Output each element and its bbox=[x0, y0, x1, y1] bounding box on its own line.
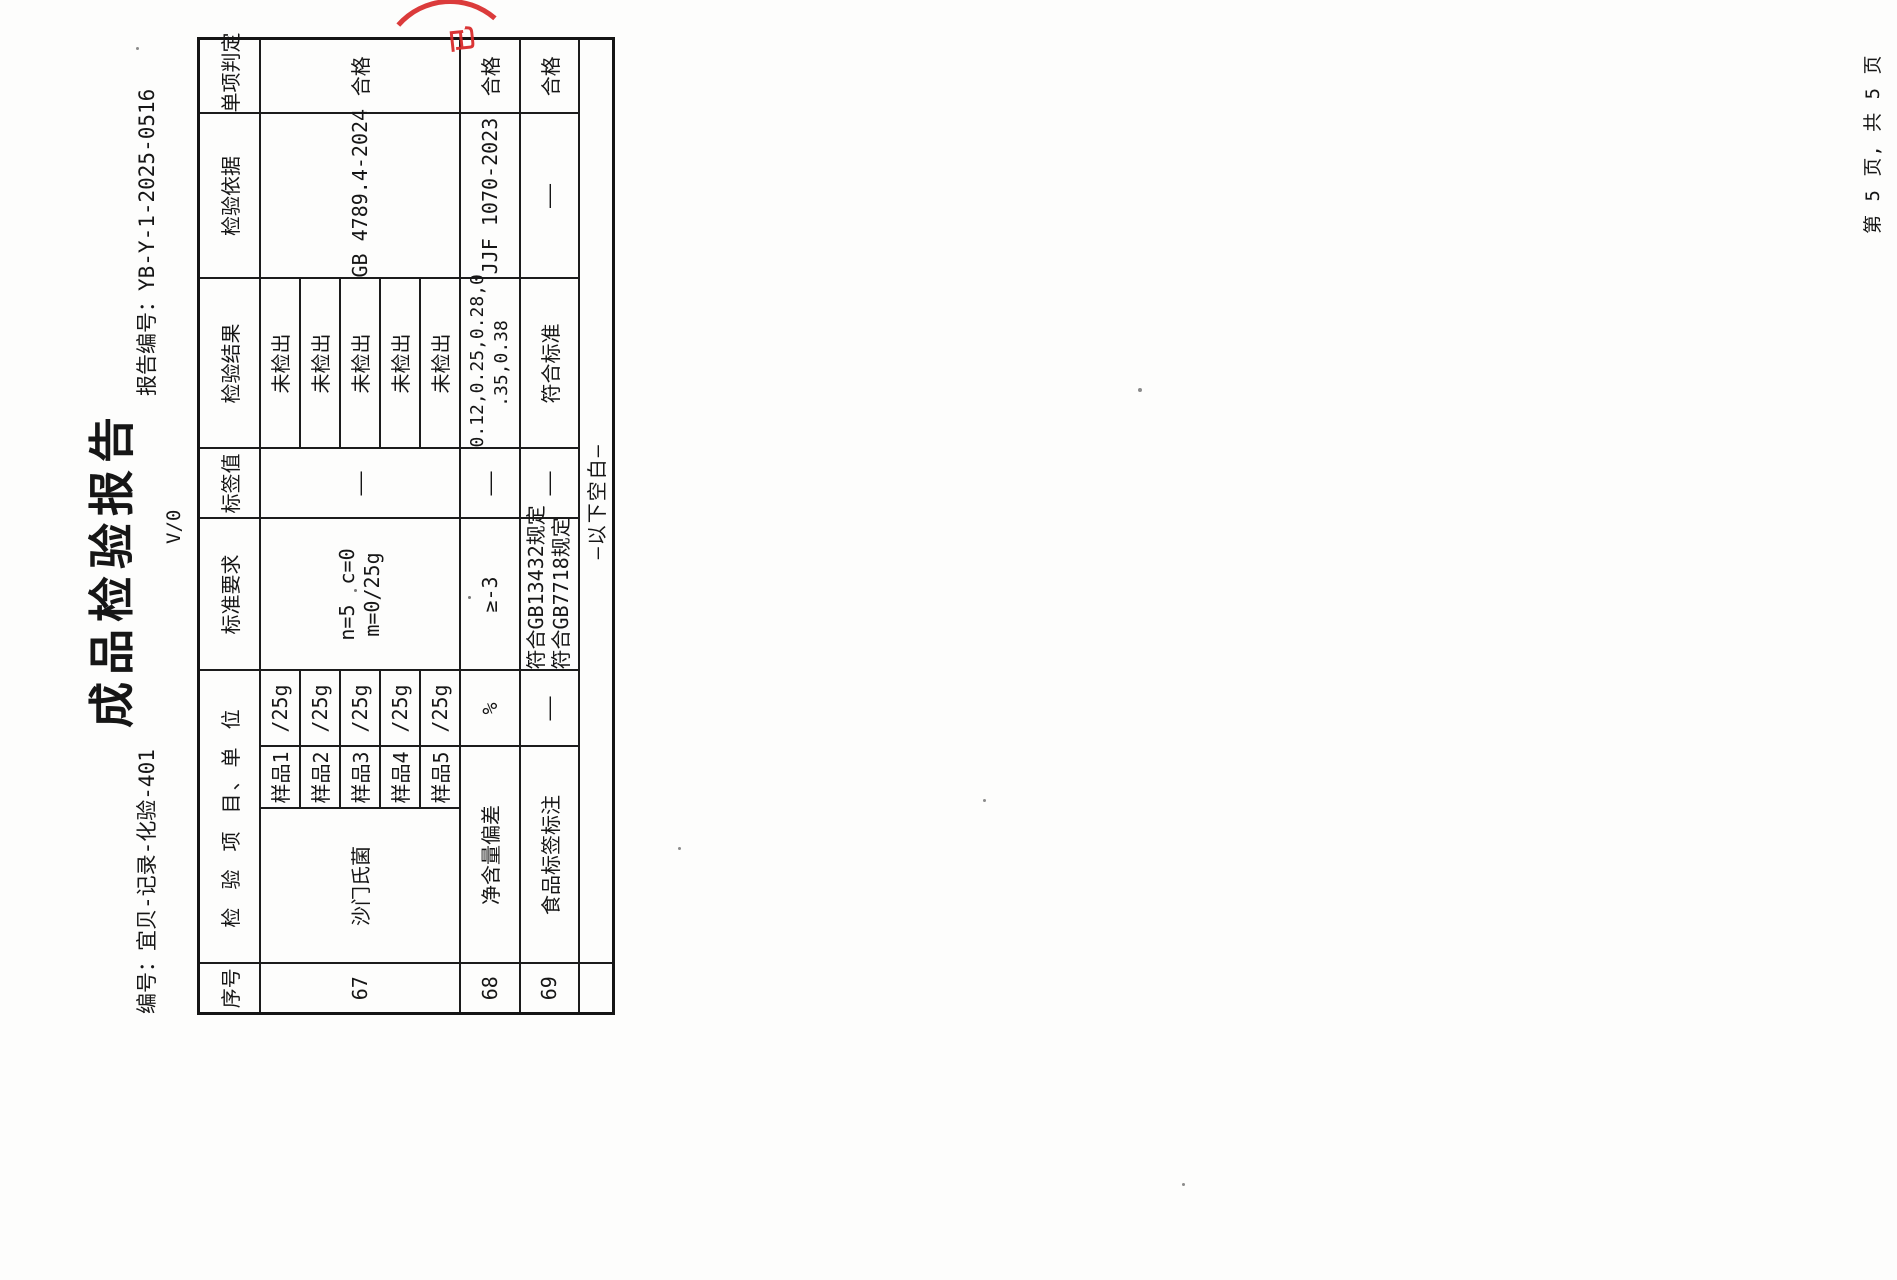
col-header-result: 检验结果 bbox=[199, 279, 260, 449]
form-number: 编号：宜贝-记录-化验-401 bbox=[131, 749, 161, 1014]
sample-unit: /25g bbox=[420, 671, 460, 747]
standard-requirement: ≥-3 bbox=[460, 519, 520, 671]
version-mark: V/0 bbox=[163, 510, 185, 544]
item-unit: —— bbox=[520, 671, 579, 747]
sample-result: 未检出 bbox=[420, 279, 460, 449]
standard-line-1: 符合GB13432规定 bbox=[524, 520, 549, 670]
sample-unit: /25g bbox=[300, 671, 340, 747]
sample-name: 样品2 bbox=[300, 747, 340, 809]
scan-speck bbox=[983, 799, 986, 802]
result-line-1: 0.12,0.25,0.28,0 bbox=[466, 280, 490, 448]
row-number: 68 bbox=[460, 964, 520, 1014]
standard-line-2: m=0/25g bbox=[360, 520, 385, 670]
row-number: 67 bbox=[260, 964, 460, 1014]
col-header-basis: 检验依据 bbox=[199, 114, 260, 279]
sample-name: 样品4 bbox=[380, 747, 420, 809]
blank-row: —以下空白— bbox=[579, 39, 614, 1014]
sample-name: 样品5 bbox=[420, 747, 460, 809]
standard-line-1: n=5 c=0 bbox=[335, 520, 360, 670]
label-value: —— bbox=[460, 449, 520, 519]
col-header-standard: 标准要求 bbox=[199, 519, 260, 671]
result-line-2: .35,0.38 bbox=[490, 280, 514, 448]
sample-unit: /25g bbox=[340, 671, 380, 747]
sample-result: 未检出 bbox=[380, 279, 420, 449]
judgement: 合格 bbox=[520, 39, 579, 114]
inspection-result: 0.12,0.25,0.28,0 .35,0.38 bbox=[460, 279, 520, 449]
report-title: 成品检验报告 bbox=[76, 410, 142, 728]
col-header-no: 序号 bbox=[199, 964, 260, 1014]
standard-line-2: 符合GB7718规定 bbox=[549, 520, 574, 670]
table-row-67-sample-1: 67 沙门氏菌 样品1 /25g n=5 c=0 m=0/25g —— 未检出 … bbox=[260, 39, 300, 1014]
sample-unit: /25g bbox=[380, 671, 420, 747]
screenshot-canvas: { "doc": { "title": "成品检验报告", "form_no":… bbox=[0, 0, 1897, 1280]
sample-name: 样品1 bbox=[260, 747, 300, 809]
sample-result: 未检出 bbox=[260, 279, 300, 449]
scan-speck bbox=[1182, 1183, 1185, 1186]
standard-requirement: 符合GB13432规定 符合GB7718规定 bbox=[520, 519, 579, 671]
scan-speck bbox=[468, 596, 471, 599]
sample-result: 未检出 bbox=[340, 279, 380, 449]
col-header-item-unit: 检 验 项 目、单 位 bbox=[199, 671, 260, 964]
inspection-table: 序号 检 验 项 目、单 位 标准要求 标签值 检验结果 检验依据 单项判定 6… bbox=[197, 37, 615, 1015]
item-name: 沙门氏菌 bbox=[260, 809, 460, 964]
page-footer: 第 5 页, 共 5 页 bbox=[1858, 54, 1885, 234]
blank-below-text: —以下空白— bbox=[579, 39, 614, 964]
blank-serial-cell bbox=[579, 964, 614, 1014]
scan-speck bbox=[1138, 388, 1142, 392]
sample-result: 未检出 bbox=[300, 279, 340, 449]
inspection-basis: —— bbox=[520, 114, 579, 279]
label-value: —— bbox=[260, 449, 460, 519]
row-number: 69 bbox=[520, 964, 579, 1014]
standard-requirement: n=5 c=0 m=0/25g bbox=[260, 519, 460, 671]
scan-speck bbox=[136, 47, 139, 50]
item-name: 食品标签标注 bbox=[520, 747, 579, 964]
scanned-report-page: 成品检验报告 编号：宜贝-记录-化验-401 报告编号：YB-Y-1-2025-… bbox=[0, 0, 1897, 1280]
table-row-69: 69 食品标签标注 —— 符合GB13432规定 符合GB7718规定 —— 符… bbox=[520, 39, 579, 1014]
item-name: 净含量偏差 bbox=[460, 747, 520, 964]
sample-unit: /25g bbox=[260, 671, 300, 747]
table-row-68: 68 净含量偏差 % ≥-3 —— 0.12,0.25,0.28,0 .35,0… bbox=[460, 39, 520, 1014]
col-header-judgement: 单项判定 bbox=[199, 39, 260, 114]
red-stamp-character: 已 bbox=[440, 24, 482, 55]
item-unit: % bbox=[460, 671, 520, 747]
inspection-result: 符合标准 bbox=[520, 279, 579, 449]
col-header-label-value: 标签值 bbox=[199, 449, 260, 519]
report-number: 报告编号：YB-Y-1-2025-0516 bbox=[131, 89, 161, 396]
table-header-row: 序号 检 验 项 目、单 位 标准要求 标签值 检验结果 检验依据 单项判定 bbox=[199, 39, 260, 1014]
scan-speck bbox=[678, 847, 681, 850]
sample-name: 样品3 bbox=[340, 747, 380, 809]
scan-speck bbox=[354, 589, 357, 592]
